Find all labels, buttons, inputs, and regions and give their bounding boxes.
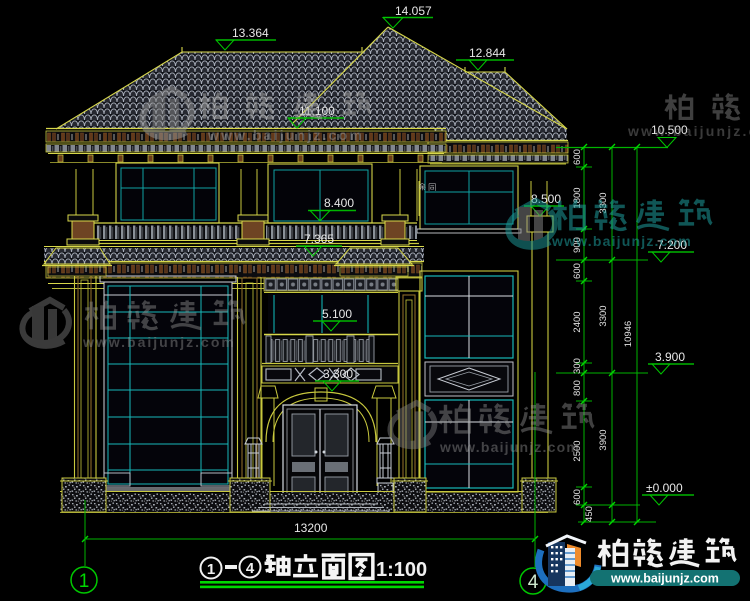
svg-text:13.364: 13.364 [232, 26, 269, 40]
svg-text:3.300: 3.300 [323, 367, 353, 381]
svg-text:300: 300 [572, 358, 583, 374]
svg-text:±0.000: ±0.000 [646, 481, 683, 495]
svg-text:600: 600 [572, 489, 583, 505]
svg-text:3300: 3300 [598, 305, 609, 326]
svg-text:4: 4 [246, 560, 255, 577]
svg-text:1:100: 1:100 [376, 559, 427, 581]
svg-text:600: 600 [572, 149, 583, 165]
svg-text:www.baijunjz.com: www.baijunjz.com [627, 123, 750, 139]
svg-text:13200: 13200 [294, 521, 328, 535]
svg-text:12.844: 12.844 [469, 46, 506, 60]
svg-text:800: 800 [572, 380, 583, 396]
svg-text:4: 4 [528, 572, 539, 593]
svg-text:www.baijunjz.com: www.baijunjz.com [610, 572, 719, 586]
svg-text:5.100: 5.100 [322, 307, 352, 321]
svg-text:www.baijunjz.com: www.baijunjz.com [551, 233, 692, 249]
svg-text:600: 600 [572, 263, 583, 279]
svg-text:3.900: 3.900 [655, 350, 685, 364]
svg-text:2400: 2400 [572, 311, 583, 332]
svg-text:3900: 3900 [598, 429, 609, 450]
svg-text:14.057: 14.057 [395, 4, 432, 18]
svg-text:8.400: 8.400 [324, 196, 354, 210]
svg-text:www.baijunjz.com: www.baijunjz.com [207, 127, 364, 143]
svg-text:7.365: 7.365 [304, 232, 334, 246]
svg-text:450: 450 [584, 506, 595, 522]
svg-text:www.baijunjz.com: www.baijunjz.com [439, 439, 580, 455]
svg-text:www.baijunjz.com: www.baijunjz.com [82, 334, 236, 350]
svg-text:1: 1 [79, 571, 90, 592]
svg-text:1: 1 [207, 561, 215, 578]
svg-text:10946: 10946 [623, 321, 634, 347]
